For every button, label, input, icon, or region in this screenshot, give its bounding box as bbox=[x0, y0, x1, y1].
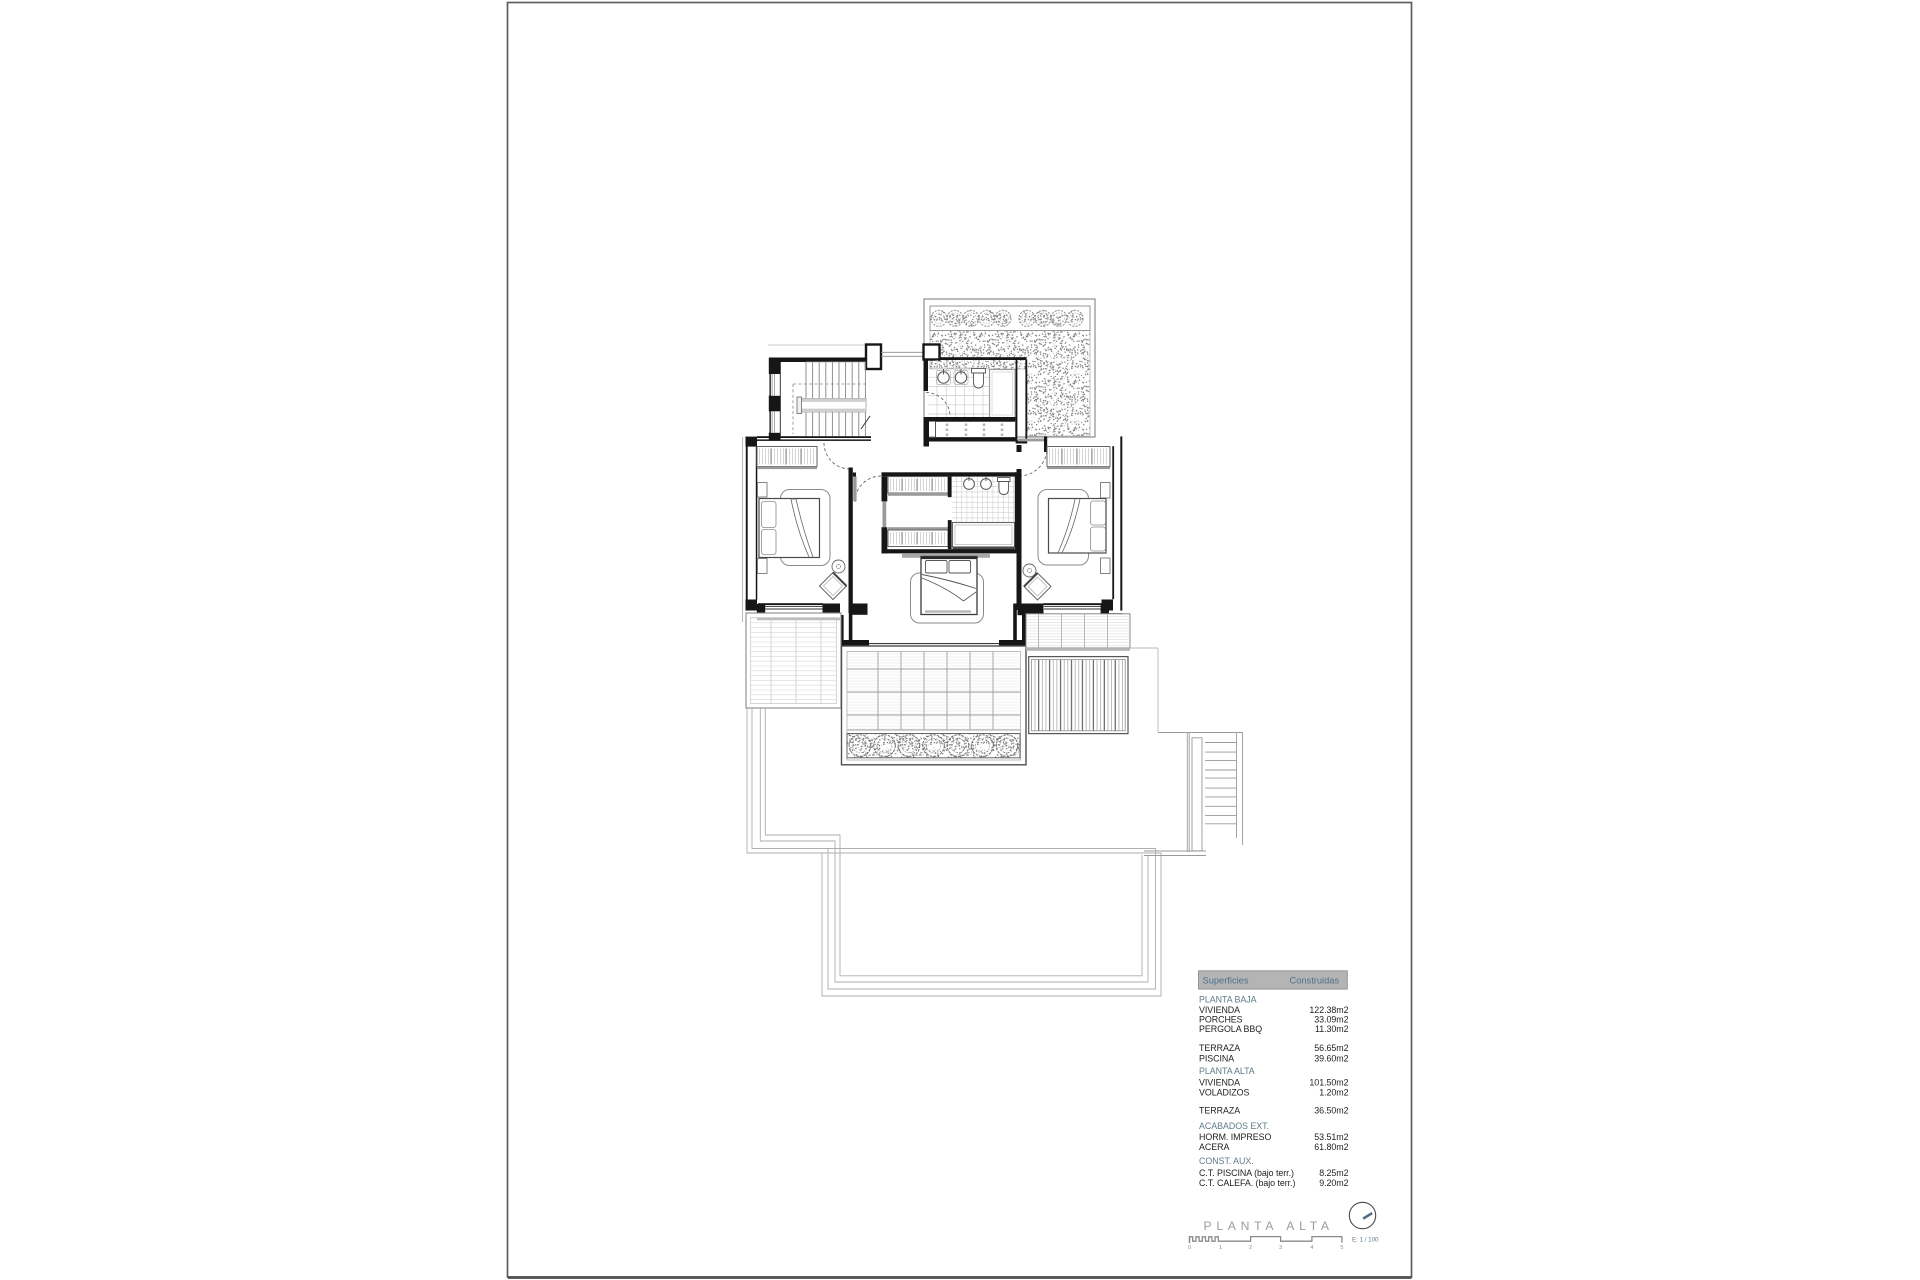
svg-text:Superficies: Superficies bbox=[1203, 976, 1249, 986]
svg-text:Construidas: Construidas bbox=[1290, 976, 1340, 986]
svg-text:4: 4 bbox=[1310, 1245, 1313, 1251]
svg-text:53.51m2: 53.51m2 bbox=[1314, 1132, 1348, 1142]
svg-text:C.T. CALEFA. (bajo terr.): C.T. CALEFA. (bajo terr.) bbox=[1199, 1178, 1295, 1188]
svg-text:5: 5 bbox=[1340, 1245, 1343, 1251]
svg-text:VIVIENDA: VIVIENDA bbox=[1199, 1005, 1240, 1015]
svg-text:11.30m2: 11.30m2 bbox=[1315, 1024, 1349, 1034]
svg-text:TERRAZA: TERRAZA bbox=[1199, 1106, 1240, 1116]
svg-text:ACERA: ACERA bbox=[1199, 1142, 1229, 1152]
svg-text:122.38m2: 122.38m2 bbox=[1309, 1005, 1348, 1015]
svg-text:1.20m2: 1.20m2 bbox=[1319, 1087, 1348, 1097]
svg-text:VOLADIZOS: VOLADIZOS bbox=[1199, 1087, 1249, 1097]
svg-text:TERRAZA: TERRAZA bbox=[1199, 1043, 1240, 1053]
svg-text:PISCINA: PISCINA bbox=[1199, 1054, 1234, 1064]
svg-text:8.25m2: 8.25m2 bbox=[1319, 1168, 1348, 1178]
svg-text:56.65m2: 56.65m2 bbox=[1314, 1043, 1348, 1053]
svg-text:9.20m2: 9.20m2 bbox=[1319, 1178, 1348, 1188]
svg-text:39.60m2: 39.60m2 bbox=[1314, 1054, 1348, 1064]
svg-text:PLANTA BAJA: PLANTA BAJA bbox=[1199, 994, 1257, 1004]
svg-text:0: 0 bbox=[1188, 1245, 1191, 1251]
svg-text:HORM. IMPRESO: HORM. IMPRESO bbox=[1199, 1132, 1271, 1142]
svg-text:E: 1 / 100: E: 1 / 100 bbox=[1352, 1237, 1379, 1244]
svg-text:61.80m2: 61.80m2 bbox=[1314, 1142, 1348, 1152]
svg-text:2: 2 bbox=[1249, 1245, 1252, 1251]
svg-text:ACABADOS EXT.: ACABADOS EXT. bbox=[1199, 1121, 1269, 1131]
svg-text:C.T. PISCINA (bajo terr.): C.T. PISCINA (bajo terr.) bbox=[1199, 1168, 1294, 1178]
svg-text:CONST. AUX.: CONST. AUX. bbox=[1199, 1156, 1254, 1166]
svg-text:PERGOLA BBQ: PERGOLA BBQ bbox=[1199, 1024, 1262, 1034]
svg-text:VIVIENDA: VIVIENDA bbox=[1199, 1077, 1240, 1087]
svg-text:PLANTA ALTA: PLANTA ALTA bbox=[1199, 1066, 1255, 1076]
svg-text:1: 1 bbox=[1219, 1245, 1222, 1251]
svg-text:3: 3 bbox=[1279, 1245, 1282, 1251]
svg-text:PLANTA ALTA: PLANTA ALTA bbox=[1204, 1219, 1334, 1233]
svg-text:101.50m2: 101.50m2 bbox=[1309, 1077, 1348, 1087]
svg-text:36.50m2: 36.50m2 bbox=[1314, 1106, 1348, 1116]
